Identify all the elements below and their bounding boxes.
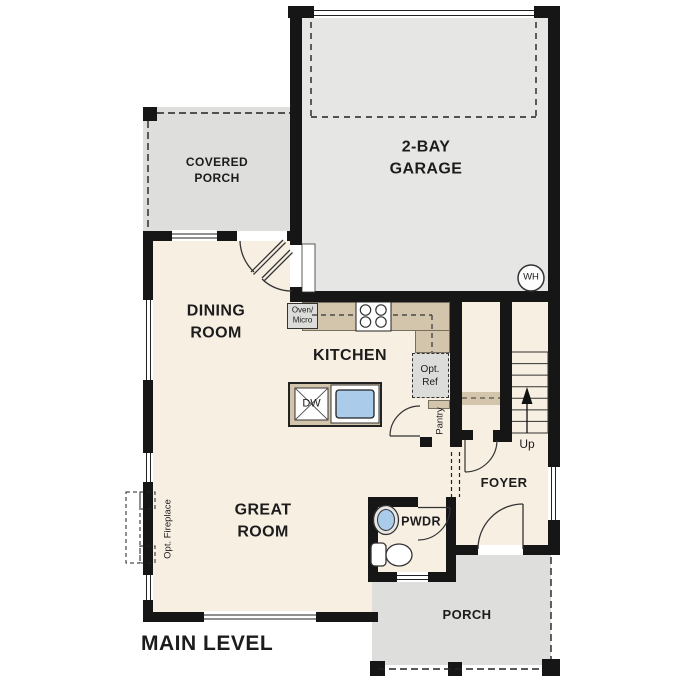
window [143, 453, 153, 482]
wall [523, 545, 560, 555]
stairwell-floor [512, 302, 548, 440]
great-room-label: GREAT ROOM [235, 499, 292, 542]
hallway-floor [462, 302, 500, 430]
kitchen-counter-corner [415, 330, 450, 353]
wall [368, 497, 418, 507]
window [143, 575, 153, 600]
wall [290, 7, 302, 245]
wall [143, 482, 153, 575]
powder-room-label: PWDR [401, 514, 441, 531]
wall [446, 497, 456, 582]
wall [217, 231, 237, 241]
pantry-label: Pantry [435, 407, 448, 434]
hall-bench [462, 392, 500, 405]
kitchen-counter-top [302, 302, 450, 331]
window [172, 230, 217, 241]
porch-post [448, 662, 462, 676]
dishwasher-label: DW [302, 397, 320, 412]
wall [143, 107, 157, 121]
porch-post [542, 659, 560, 676]
oven-micro-label: Oven/ Micro [292, 306, 313, 327]
up-label: Up [519, 436, 534, 452]
dining-room-label: DINING ROOM [187, 300, 245, 343]
wall [143, 231, 153, 300]
wall [290, 291, 560, 302]
window [143, 300, 153, 380]
opt-ref-label: Opt. Ref [421, 363, 440, 389]
opening-passage-floor [450, 442, 462, 497]
wall [368, 497, 378, 582]
wall [450, 302, 462, 447]
window [204, 611, 316, 622]
porch-label: PORCH [443, 606, 492, 624]
wall [500, 302, 512, 440]
wall [143, 612, 204, 622]
wall [143, 380, 153, 453]
wall [287, 231, 302, 241]
garage-label: 2-BAY GARAGE [390, 136, 463, 179]
plan-title: MAIN LEVEL [141, 632, 273, 656]
wall [450, 430, 473, 440]
porch-post [370, 661, 385, 676]
wall [420, 437, 432, 447]
water-heater-label: WH [523, 272, 539, 285]
wall [493, 430, 512, 442]
wall [548, 302, 560, 467]
wall [428, 572, 456, 582]
opt-fireplace-label: Opt. Fireplace [163, 499, 176, 559]
window [548, 467, 560, 520]
floorplan-canvas: COVERED PORCH 2-BAY GARAGE DINING ROOM K… [0, 0, 687, 687]
foyer-label: FOYER [481, 474, 528, 492]
covered-porch-label: COVERED PORCH [186, 154, 248, 186]
wall [368, 572, 397, 582]
wall [446, 545, 478, 555]
wall [316, 612, 378, 622]
kitchen-label: KITCHEN [313, 345, 387, 367]
wall [548, 6, 560, 302]
